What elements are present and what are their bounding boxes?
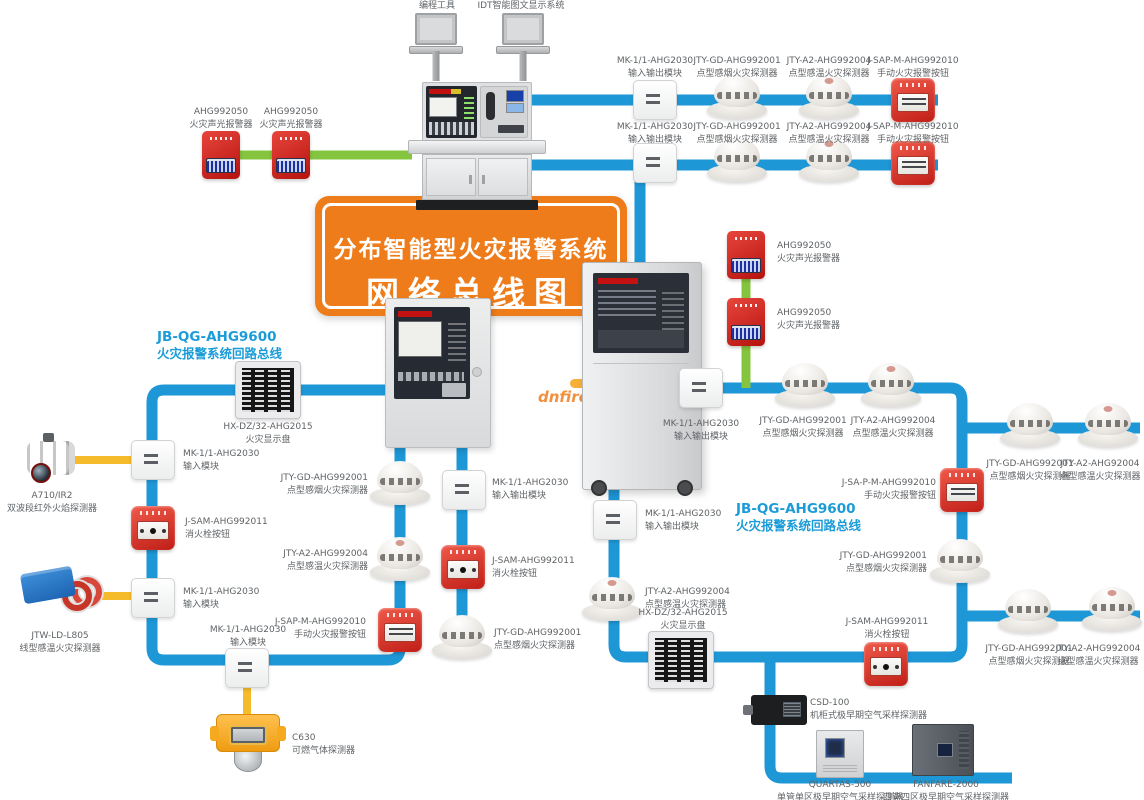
- fire-display-panel-left: [235, 361, 301, 419]
- linear-heat-detector-label: JTW-LD-L805线型感温火灾探测器: [19, 630, 100, 655]
- laptop-programming-tool-label: 编程工具: [419, 0, 455, 13]
- heat-detector-right-bottom: [1081, 587, 1143, 633]
- io-module-loop2-1-label: MK-1/1-AHG2030输入输出模块: [645, 508, 721, 533]
- gas-detector: [213, 708, 283, 772]
- sounder-strobe-right-1-label: AHG992050火灾声光报警器: [777, 240, 840, 265]
- air-sampling-fanfare2000-label: FANFARE-2000四管四区极早期空气采样探测器: [883, 779, 1009, 800]
- smoke-detector-loop2-2-label: JTY-GD-AHG992001点型感烟火灾探测器: [840, 550, 927, 575]
- sounder-strobe-right-1: [727, 231, 765, 279]
- smoke-detector-row2-label: JTY-GD-AHG992001点型感烟火灾探测器: [693, 121, 780, 146]
- io-module-loop1: [442, 470, 486, 510]
- heat-detector-loop2-2-label: JTY-A2-AHG992004点型感温火灾探测器: [851, 415, 936, 440]
- heat-detector-row1-label: JTY-A2-AHG992004点型感温火灾探测器: [787, 55, 872, 80]
- air-sampling-fanfare2000: [912, 724, 974, 776]
- input-module-left-1: [131, 440, 175, 480]
- manual-call-point-row2: [891, 141, 935, 185]
- flame-detector: [23, 433, 81, 483]
- manual-call-point-loop1-label: J-SAP-M-AHG992010手动火灾报警按钮: [275, 616, 366, 641]
- io-module-loop1-label: MK-1/1-AHG2030输入输出模块: [492, 477, 568, 502]
- gas-detector-label: C630可燃气体探测器: [292, 732, 355, 757]
- loop-bus-desc-left: 火灾报警系统回路总线: [157, 346, 282, 363]
- manual-call-point-loop2: [940, 468, 984, 512]
- device-nodes-layer: 编程工具IDT智能图文显示系统MK-1/1-AHG2030输入输出模块JTY-G…: [0, 0, 1144, 800]
- manual-call-point-row1: [891, 78, 935, 122]
- fire-display-panel-right-label: HX-DZ/32-AHG2015火灾显示盘: [638, 607, 727, 632]
- manual-call-point-row1-label: J-SAP-M-AHG992010手动火灾报警按钮: [867, 55, 958, 80]
- air-sampling-quartas500: [816, 730, 864, 778]
- smoke-detector-right-bottom: [997, 589, 1059, 635]
- smoke-detector-loop1-2: [431, 615, 493, 661]
- loop-bus-code-right: JB-QG-AHG9600: [736, 500, 861, 518]
- air-sampling-csd100-label: CSD-100机柜式极早期空气采样探测器: [810, 697, 927, 722]
- hydrant-button-loop2-label: J-SAM-AHG992011消火栓按钮: [846, 616, 929, 641]
- io-module-row1-label: MK-1/1-AHG2030输入输出模块: [617, 55, 693, 80]
- smoke-detector-row1-label: JTY-GD-AHG992001点型感烟火灾探测器: [693, 55, 780, 80]
- smoke-detector-row1: [706, 75, 768, 121]
- heat-detector-row1: [798, 75, 860, 121]
- smoke-detector-loop2-2: [929, 539, 991, 585]
- sounder-strobe-left-1-label: AHG992050火灾声光报警器: [189, 106, 252, 131]
- heat-detector-right-top-label: JTY-A2-AHG92004点型感温火灾探测器: [1059, 458, 1140, 483]
- heat-detector-right-top: [1077, 403, 1139, 449]
- sounder-strobe-left-2: [272, 131, 310, 179]
- sounder-strobe-right-2: [727, 298, 765, 346]
- heat-detector-loop2-2: [860, 363, 922, 409]
- hydrant-button-left-label: J-SAM-AHG992011消火栓按钮: [185, 516, 268, 541]
- hydrant-button-loop1-label: J-SAM-AHG992011消火栓按钮: [492, 555, 575, 580]
- loop-bus-desc-right: 火灾报警系统回路总线: [736, 518, 861, 535]
- laptop-idt-display-label: IDT智能图文显示系统: [477, 0, 564, 13]
- linear-heat-detector: [22, 565, 102, 619]
- loop-bus-label-left: JB-QG-AHG9600 火灾报警系统回路总线: [157, 328, 282, 363]
- manual-call-point-row2-label: J-SAP-M-AHG992010手动火灾报警按钮: [867, 121, 958, 146]
- laptop-idt-display: [495, 11, 551, 69]
- input-module-bottom: [225, 648, 269, 688]
- input-module-left-1-label: MK-1/1-AHG2030输入模块: [183, 448, 259, 473]
- manual-call-point-loop2-label: J-SA-P-M-AHG992010手动火灾报警按钮: [842, 477, 936, 502]
- air-sampling-csd100: [751, 695, 807, 725]
- input-module-left-2: [131, 578, 175, 618]
- fire-display-panel-right: [648, 631, 714, 689]
- io-module-loop2-1: [593, 500, 637, 540]
- heat-detector-right-bottom-label: JTY-A2-AHG992004点型感温火灾探测器: [1056, 643, 1141, 668]
- io-module-loop2-2: [679, 368, 723, 408]
- fire-display-panel-left-label: HX-DZ/32-AHG2015火灾显示盘: [223, 421, 312, 446]
- hydrant-button-left: [131, 506, 175, 550]
- io-module-row2: [633, 143, 677, 183]
- heat-detector-row2-label: JTY-A2-AHG992004点型感温火灾探测器: [787, 121, 872, 146]
- smoke-detector-loop1-1-label: JTY-GD-AHG992001点型感烟火灾探测器: [281, 472, 368, 497]
- sounder-strobe-left-1: [202, 131, 240, 179]
- smoke-detector-loop1-2-label: JTY-GD-AHG992001点型感烟火灾探测器: [494, 627, 581, 652]
- heat-detector-loop2-1: [581, 577, 643, 623]
- sounder-strobe-left-2-label: AHG992050火灾声光报警器: [259, 106, 322, 131]
- manual-call-point-loop1: [378, 608, 422, 652]
- sounder-strobe-right-2-label: AHG992050火灾声光报警器: [777, 307, 840, 332]
- io-module-row1: [633, 80, 677, 120]
- heat-detector-loop1-label: JTY-A2-AHG992004点型感温火灾探测器: [283, 548, 368, 573]
- smoke-detector-right-top: [999, 403, 1061, 449]
- io-module-loop2-2-label: MK-1/1-AHG2030输入输出模块: [663, 418, 739, 443]
- flame-detector-label: A710/IR2双波段红外火焰探测器: [7, 490, 97, 515]
- io-module-row2-label: MK-1/1-AHG2030输入输出模块: [617, 121, 693, 146]
- input-module-left-2-label: MK-1/1-AHG2030输入模块: [183, 586, 259, 611]
- hydrant-button-loop2: [864, 642, 908, 686]
- smoke-detector-loop2-1: [774, 363, 836, 409]
- heat-detector-loop1: [369, 537, 431, 583]
- smoke-detector-loop1-1: [369, 461, 431, 507]
- diagram-stage: 分布智能型火灾报警系统 网络总线图 dnfire.c: [0, 0, 1144, 800]
- hydrant-button-loop1: [441, 545, 485, 589]
- loop-bus-code-left: JB-QG-AHG9600: [157, 328, 282, 346]
- laptop-programming-tool: [408, 11, 464, 69]
- smoke-detector-loop2-1-label: JTY-GD-AHG992001点型感烟火灾探测器: [759, 415, 846, 440]
- loop-bus-label-right: JB-QG-AHG9600 火灾报警系统回路总线: [736, 500, 861, 535]
